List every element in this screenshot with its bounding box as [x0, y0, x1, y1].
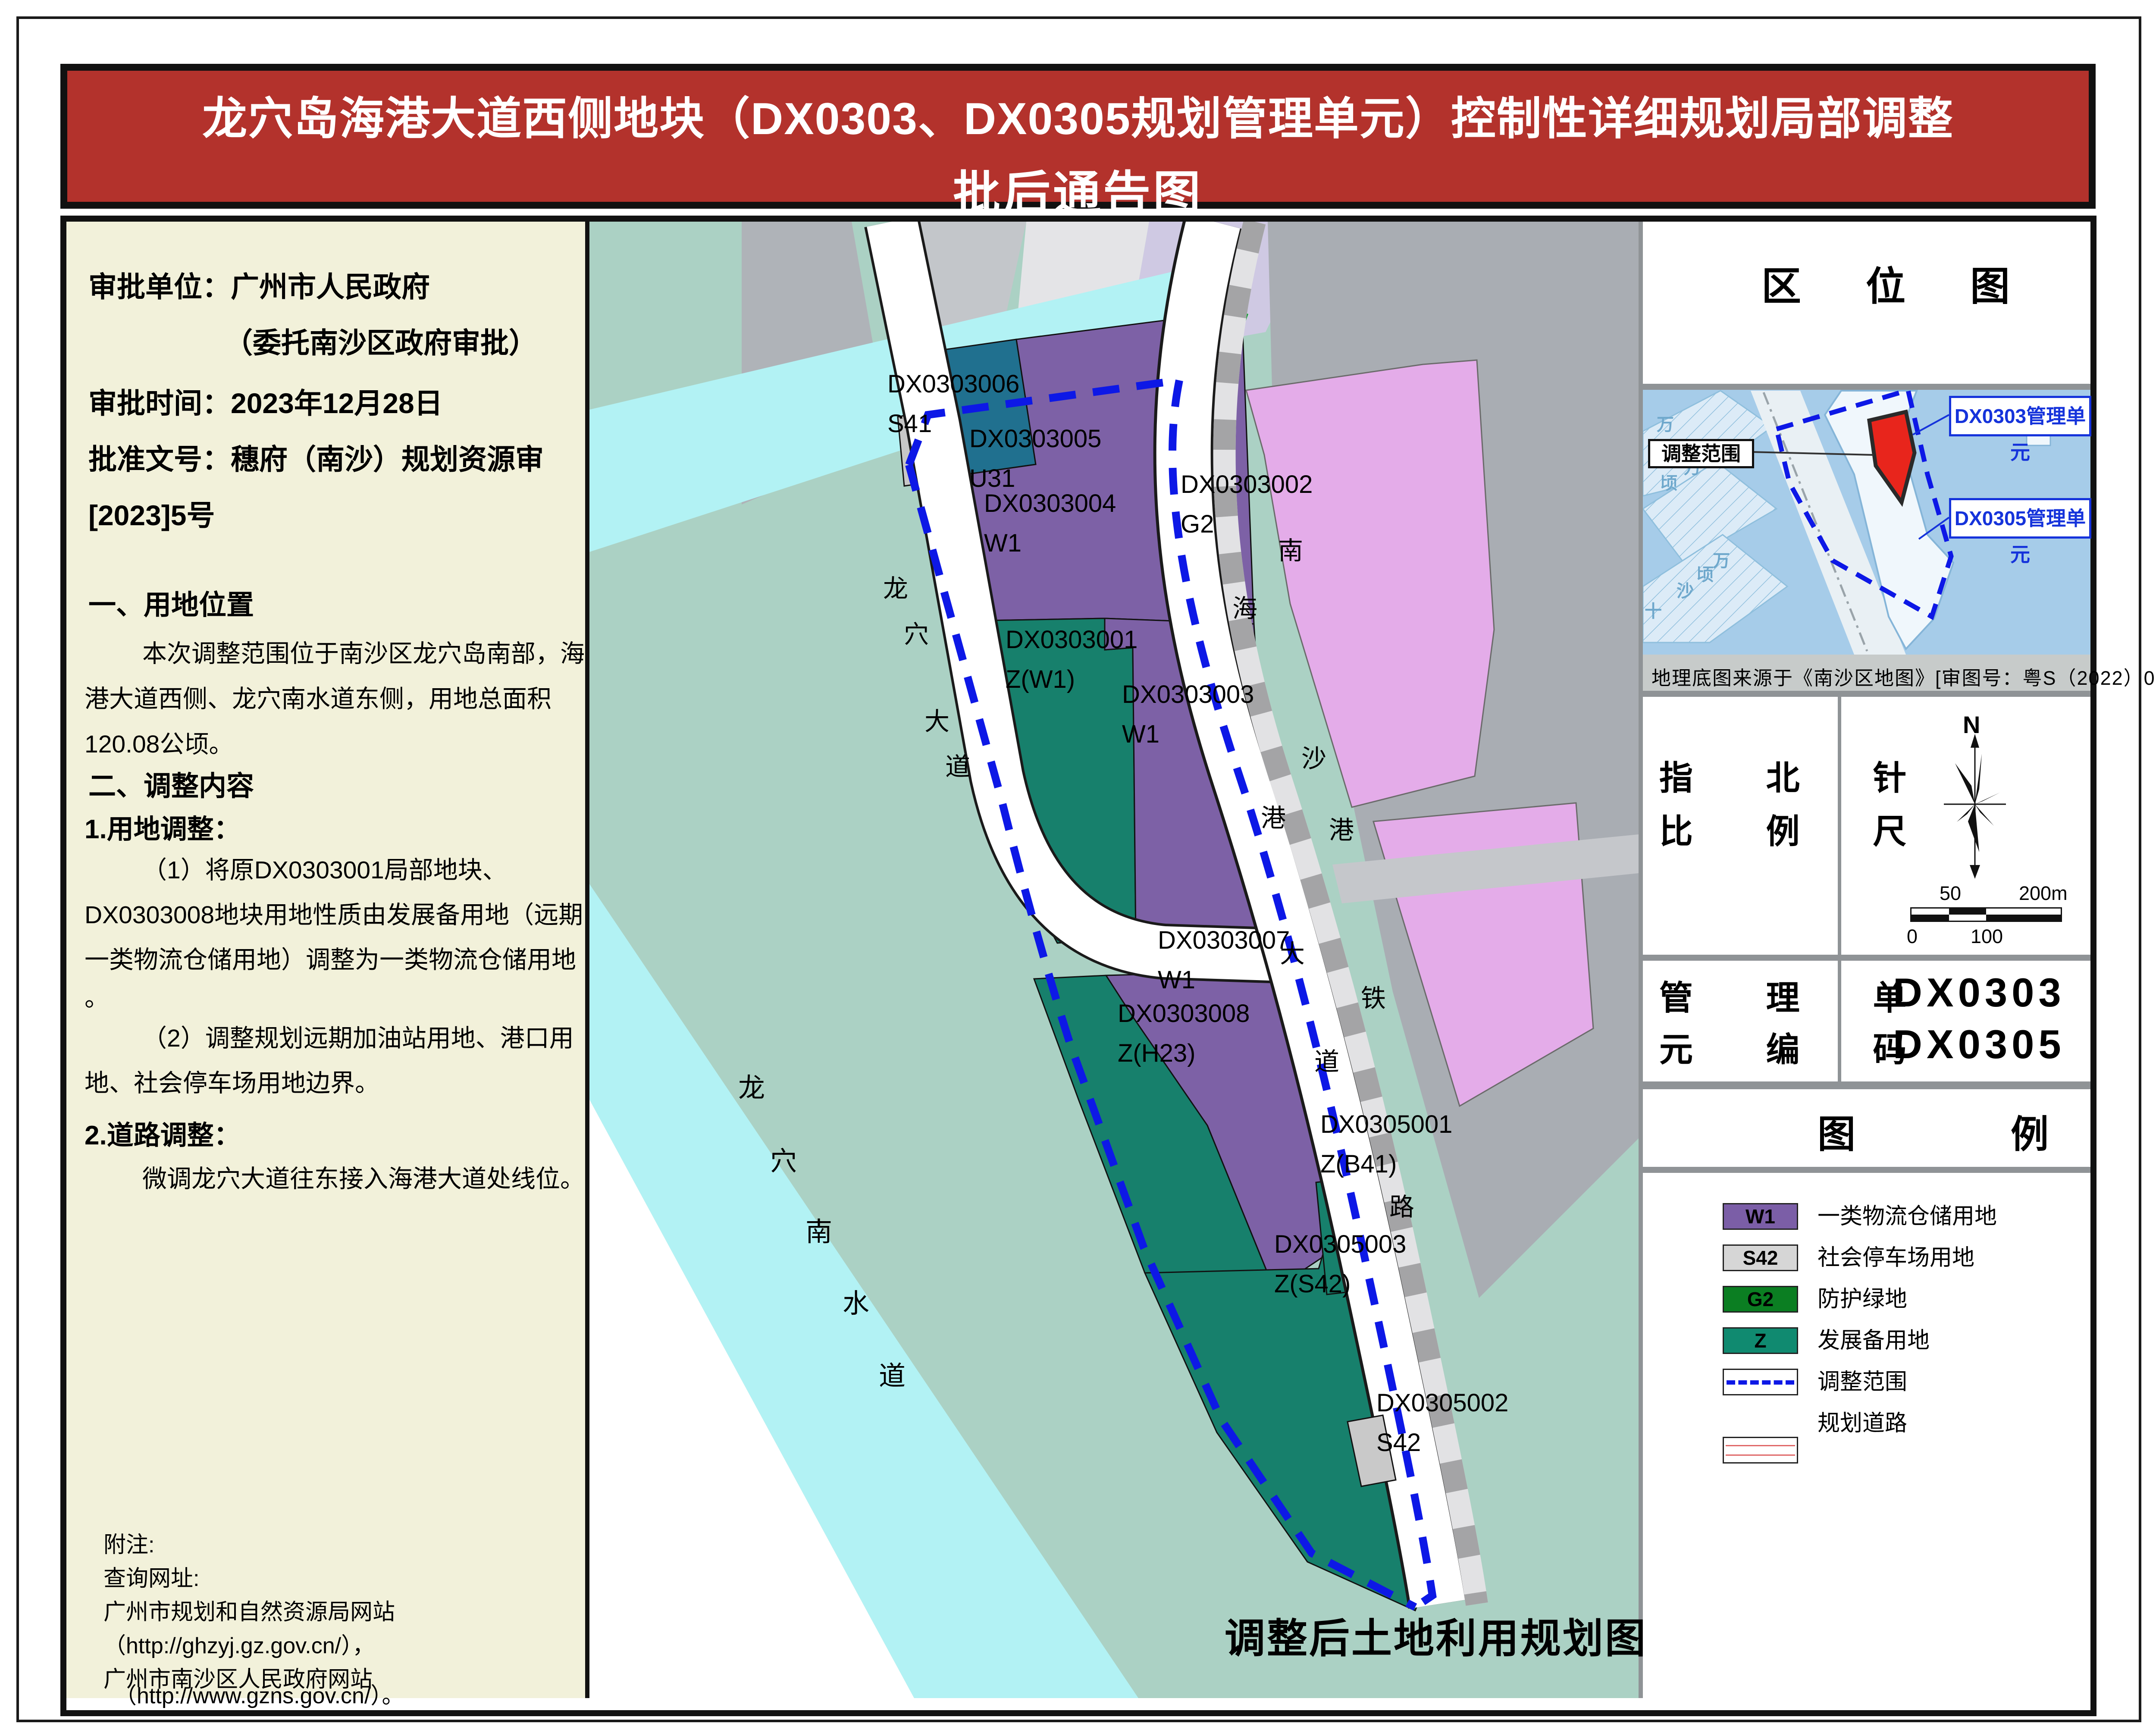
note-line-1: 查询网址:: [103, 1560, 199, 1592]
label-DX0303008: DX0303008 Z(H23): [1118, 994, 1250, 1073]
note-line-0: 附注:: [103, 1526, 154, 1559]
para1-line1: （1）将原DX0303001局部地块、: [142, 850, 507, 886]
legend-label-g2: 防护绿地: [1818, 1286, 1907, 1313]
para1-line4: 。: [85, 978, 109, 1013]
divider-map-panel: [1639, 222, 1643, 1698]
para1-line2: DX0303008地块用地性质由发展备用地（远期: [85, 895, 583, 931]
water-name-4: 道: [879, 1354, 906, 1393]
parcel-code: DX0305003: [1274, 1225, 1406, 1264]
sub1-title: 1.用地调整：: [85, 807, 241, 846]
road-name-longxue-3: 道: [945, 746, 970, 783]
unit-code-value-2: DX0305: [1893, 1021, 2065, 1068]
loc-label-dx0305: DX0305管理单元: [1949, 498, 2091, 539]
parcel-code: DX0303007: [1158, 921, 1290, 960]
road-name-longxue-1: 穴: [904, 614, 929, 650]
para2-line2: 地、社会停车场用地边界。: [85, 1063, 379, 1099]
parcel-code: DX0303008: [1118, 994, 1250, 1034]
compass-title-row1: 指 北 针: [1659, 751, 1938, 799]
label-DX0305003: DX0305003 Z(S42): [1274, 1225, 1406, 1304]
road-line-icon: [1726, 1445, 1795, 1446]
approval-unit: 审批单位：广州市人民政府: [88, 264, 430, 305]
road-line-icon: [1726, 1454, 1795, 1456]
poster-title-line1: 龙穴岛海港大道西侧地块（DX0303、DX0305规划管理单元）控制性详细规划局…: [67, 82, 2089, 147]
parcel-code: DX0303005: [969, 419, 1101, 459]
road-name-haigang-1: 港: [1261, 798, 1286, 834]
road-name-haigang-0: 海: [1232, 588, 1257, 624]
sub2-title: 2.道路调整：: [85, 1113, 241, 1152]
scale-bar: 50 200m 0 100: [1906, 882, 2070, 956]
note-line-5: （http://www.gzns.gov.cn/）。: [114, 1677, 404, 1710]
section1-title: 一、用地位置: [88, 583, 254, 623]
loc-label-dx0303: DX0303管理单元: [1949, 396, 2091, 436]
section1-line1: 本次调整范围位于南沙区龙穴岛南部，海: [142, 634, 585, 669]
legend-label-boundary: 调整范围: [1818, 1369, 1907, 1395]
compass-top-arrow: [1971, 734, 1979, 748]
compass-bottom-feather: [1970, 865, 1980, 879]
divider-info-map: [585, 222, 589, 1698]
title-banner: 龙穴岛海港大道西侧地块（DX0303、DX0305规划管理单元）控制性详细规划局…: [60, 64, 2096, 209]
place-char-1: 顷: [1660, 469, 1677, 494]
legend-label-s42: 社会停车场用地: [1818, 1244, 1974, 1271]
para3-line1: 微调龙穴大道往东接入海港大道处线位。: [142, 1159, 585, 1194]
scale-50: 50: [1940, 882, 1961, 905]
water-name-2: 南: [805, 1210, 832, 1249]
compass-blade-1: [1955, 763, 1975, 804]
parcel-use: Z(S42): [1274, 1264, 1406, 1304]
road-name-haigang-2: 大: [1280, 934, 1305, 970]
parcel-use: Z(B41): [1320, 1144, 1452, 1184]
doc-number-line2: [2023]5号: [88, 492, 215, 534]
section1-line2: 港大道西侧、龙穴南水道东侧，用地总面积: [85, 679, 552, 715]
scale-seg: [1912, 915, 1949, 921]
para2-line1: （2）调整规划远期加油站用地、港口用: [142, 1019, 574, 1054]
north-arrow-icon: [1940, 733, 2009, 880]
poster-title-line2: 批后通告图: [67, 155, 2089, 224]
scale-seg: [1912, 909, 1949, 915]
loc-label-scope: 调整范围: [1648, 439, 1754, 468]
road-name-haigang-3: 道: [1314, 1041, 1339, 1078]
scale-100: 100: [1971, 925, 2003, 948]
compass-blade-4: [1975, 804, 1994, 826]
parcel-code: DX0303003: [1122, 675, 1254, 715]
boundary-dash-icon: [1727, 1380, 1794, 1385]
scale-seg: [1986, 909, 2061, 915]
scale-200m: 200m: [2019, 882, 2068, 905]
railway-name-4: 路: [1389, 1187, 1414, 1223]
compass-blade-5: [1968, 804, 1979, 852]
planning-announcement-poster: { "title": { "line1": "龙穴岛海港大道西侧地块（DX030…: [0, 0, 2156, 1730]
scale-bar-graphic: [1910, 907, 2062, 922]
map-caption: 调整后土地利用规划图: [1225, 1606, 1647, 1664]
divider-1: [1643, 384, 2090, 390]
compass-blade-2: [1975, 754, 1982, 804]
place-char-3: 万: [1713, 547, 1730, 572]
water-name-3: 水: [843, 1282, 869, 1320]
label-DX0303007: DX0303007 W1: [1158, 921, 1290, 1000]
parcel-code: DX0303006: [887, 364, 1019, 404]
compass-title-row2: 比 例 尺: [1659, 805, 1938, 853]
scale-seg: [1949, 909, 1987, 915]
legend-label-road: 规划道路: [1818, 1410, 1907, 1437]
parcel-code: DX0303002: [1181, 465, 1313, 505]
railway-name-0: 南: [1278, 530, 1303, 567]
parcel-code: DX0303004: [984, 484, 1116, 523]
para1-line3: 一类物流仓储用地）调整为一类物流仓储用地: [85, 940, 576, 975]
parcel-code: DX0305002: [1376, 1383, 1508, 1423]
railway-name-1: 沙: [1301, 738, 1326, 774]
label-DX0305002: DX0305002 S42: [1376, 1383, 1508, 1463]
land-use-map: [589, 222, 1639, 1698]
railway-name-3: 铁: [1361, 978, 1386, 1014]
divider-4: [1643, 1081, 2090, 1089]
label-DX0303003: DX0303003 W1: [1122, 675, 1254, 754]
place-char-6: 十: [1645, 597, 1662, 622]
section2-title: 二、调整内容: [88, 764, 254, 804]
note-line-3: （http://ghzyj.gz.gov.cn/），: [103, 1627, 375, 1660]
parcel-code: DX0303001: [1006, 620, 1138, 660]
divider-2: [1643, 691, 2090, 697]
scale-0: 0: [1907, 925, 1918, 948]
label-DX0303001: DX0303001 Z(W1): [1006, 620, 1138, 699]
legend-label-w1: 一类物流仓储用地: [1818, 1203, 1997, 1230]
divider-3: [1643, 955, 2090, 961]
legend-title: 图例: [1818, 1104, 2156, 1159]
approval-time: 审批时间：2023年12月28日: [88, 380, 443, 422]
parcel-use: W1: [1122, 715, 1254, 754]
note-line-2: 广州市规划和自然资源局网站: [103, 1594, 395, 1626]
parcel-code: DX0305001: [1320, 1105, 1452, 1144]
legend-swatch-s42: S42: [1723, 1244, 1798, 1271]
source-note: 地理底图来源于《南沙区地图》[审图号：粤S（2022）012号]: [1651, 662, 2156, 690]
parcel-use: W1: [984, 523, 1116, 563]
legend-swatch-w1: W1: [1723, 1203, 1798, 1230]
approval-delegate: （委托南沙区政府审批）: [224, 320, 537, 361]
parcel-use: Z(W1): [1006, 660, 1138, 699]
divider-5: [1643, 1167, 2090, 1173]
water-name-0: 龙: [738, 1066, 765, 1105]
doc-number-line1: 批准文号：穗府（南沙）规划资源审: [88, 436, 544, 478]
legend-label-z: 发展备用地: [1818, 1327, 1930, 1354]
place-char-0: 万: [1657, 411, 1674, 436]
legend-swatch-road: [1723, 1437, 1798, 1464]
legend-swatch-boundary: [1723, 1369, 1798, 1395]
place-char-5: 沙: [1677, 577, 1694, 602]
label-DX0305001: DX0305001 Z(B41): [1320, 1105, 1452, 1184]
place-char-4: 顷: [1696, 561, 1714, 586]
road-name-longxue-0: 龙: [883, 568, 908, 605]
section1-line3: 120.08公顷。: [85, 724, 233, 760]
scale-seg: [1949, 915, 1987, 921]
scale-seg: [1986, 915, 2061, 921]
label-DX0303004: DX0303004 W1: [984, 484, 1116, 563]
road-name-longxue-2: 大: [924, 701, 950, 737]
legend-swatch-g2: G2: [1723, 1286, 1798, 1313]
railway-name-2: 港: [1329, 810, 1354, 846]
parcel-use: S42: [1376, 1423, 1508, 1463]
compass-blade-3: [1975, 793, 2000, 804]
unit-code-value-1: DX0303: [1893, 969, 2065, 1016]
parcel-use: Z(H23): [1118, 1034, 1250, 1073]
water-name-1: 穴: [770, 1139, 797, 1178]
location-map-title: 区位图: [1761, 254, 2075, 312]
legend-swatch-z: Z: [1723, 1327, 1798, 1354]
